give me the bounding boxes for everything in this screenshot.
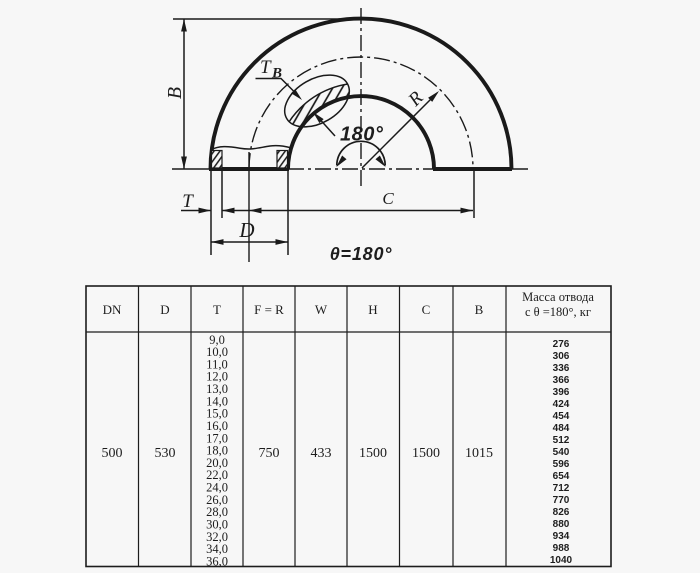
svg-text:B: B <box>164 87 186 99</box>
svg-text:433: 433 <box>311 446 332 461</box>
svg-text:530: 530 <box>155 446 176 461</box>
svg-text:C: C <box>422 302 431 317</box>
svg-text:Масса отвода: Масса отвода <box>522 290 594 304</box>
svg-text:1500: 1500 <box>359 446 387 461</box>
svg-text:θ=180°: θ=180° <box>330 244 393 264</box>
svg-text:512: 512 <box>553 435 570 446</box>
svg-text:276: 276 <box>553 339 570 350</box>
svg-text:T: T <box>182 191 194 212</box>
svg-text:H: H <box>368 302 377 317</box>
svg-text:396: 396 <box>553 387 570 398</box>
svg-text:880: 880 <box>553 519 570 530</box>
svg-text:W: W <box>315 302 328 317</box>
svg-text:F = R: F = R <box>254 302 284 317</box>
svg-text:500: 500 <box>102 446 123 461</box>
svg-text:424: 424 <box>553 399 570 410</box>
svg-text:C: C <box>382 189 394 208</box>
svg-text:B: B <box>475 302 484 317</box>
svg-text:770: 770 <box>553 495 570 506</box>
svg-text:336: 336 <box>553 363 570 374</box>
svg-text:988: 988 <box>553 543 570 554</box>
svg-text:1040: 1040 <box>550 555 573 566</box>
svg-text:D: D <box>238 218 254 242</box>
svg-text:484: 484 <box>553 423 570 434</box>
svg-text:1500: 1500 <box>412 446 440 461</box>
svg-text:596: 596 <box>553 459 570 470</box>
svg-text:с θ =180°, кг: с θ =180°, кг <box>525 305 591 319</box>
svg-text:750: 750 <box>259 446 280 461</box>
svg-text:712: 712 <box>553 483 570 494</box>
svg-text:DN: DN <box>103 302 122 317</box>
svg-text:540: 540 <box>553 447 570 458</box>
svg-text:306: 306 <box>553 351 570 362</box>
svg-text:654: 654 <box>553 471 570 482</box>
svg-text:T: T <box>213 302 221 317</box>
svg-text:1015: 1015 <box>465 446 493 461</box>
svg-text:366: 366 <box>553 375 570 386</box>
svg-text:D: D <box>160 302 169 317</box>
svg-text:36,0: 36,0 <box>206 554 228 568</box>
svg-text:826: 826 <box>553 507 570 518</box>
svg-text:T: T <box>260 57 272 78</box>
svg-text:454: 454 <box>553 411 570 422</box>
svg-text:180°: 180° <box>340 124 384 146</box>
svg-text:934: 934 <box>553 531 570 542</box>
